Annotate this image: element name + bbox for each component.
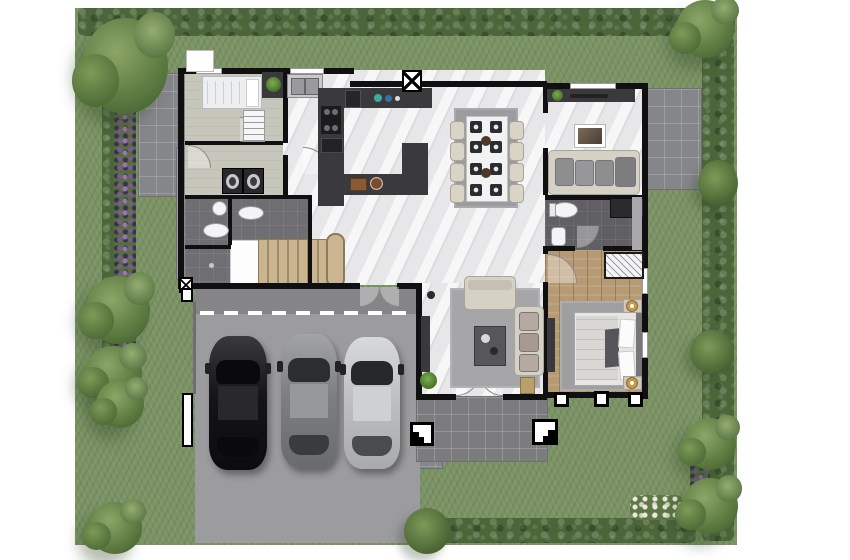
car-mirror-icon — [265, 363, 271, 374]
kettle-icon — [374, 94, 382, 102]
wall-maid-laundry — [185, 141, 283, 145]
porch-steps-right-icon — [532, 419, 558, 445]
toilet-1 — [203, 223, 229, 238]
dining-chair — [450, 142, 465, 161]
tree-left-1 — [86, 276, 150, 344]
gate-stub-west — [181, 288, 193, 302]
cooktop — [321, 106, 341, 134]
wall-garage-north-a — [178, 283, 360, 289]
dining-chair — [450, 121, 465, 140]
bush-right-3 — [684, 418, 736, 470]
shelf-unit — [243, 110, 265, 142]
sofa-cushion — [519, 333, 539, 352]
placemat — [490, 141, 502, 153]
placemat — [490, 163, 502, 175]
centerpiece — [481, 168, 491, 178]
porch-column — [628, 392, 643, 407]
lounge-sofa — [548, 150, 640, 195]
placemat — [470, 121, 482, 133]
washing-machine-2 — [243, 168, 264, 194]
appliance-icon — [385, 95, 392, 102]
double-bed — [574, 312, 640, 386]
car-windshield — [288, 358, 330, 382]
car-roof — [290, 384, 328, 418]
oven — [321, 138, 343, 153]
washing-machine-1 — [222, 168, 243, 194]
floor-lamp — [427, 291, 435, 299]
plant-living — [420, 372, 437, 389]
dining-chair — [509, 163, 524, 182]
sink-basin-1 — [291, 78, 305, 95]
ac-pad-top — [186, 50, 214, 72]
nightstand-lamp — [626, 377, 638, 389]
wall-top-center — [350, 81, 547, 87]
porch-column — [594, 391, 609, 407]
ensuite-basin — [551, 227, 566, 246]
headboard — [636, 310, 642, 386]
stair-landing — [230, 240, 260, 286]
coffee-table — [474, 326, 506, 366]
wall-west — [178, 68, 184, 288]
bedroom-tv-console — [547, 318, 555, 372]
bed-throw — [605, 328, 619, 367]
staircase — [258, 239, 330, 286]
bush-driveway-right — [404, 508, 450, 554]
refrigerator — [345, 90, 361, 108]
bush-bottom-right — [682, 478, 738, 534]
sofa-cushion — [519, 312, 539, 331]
bush-right-2 — [690, 330, 734, 374]
dining-chair — [450, 184, 465, 203]
wall-living-south-b — [503, 394, 547, 400]
car-mirror-icon — [398, 364, 404, 375]
stair-handrail — [326, 233, 345, 288]
garage-fence-line — [193, 302, 196, 394]
placemat — [470, 141, 482, 153]
toilet-tank — [549, 203, 556, 217]
car-roof — [353, 387, 391, 421]
porch-column — [554, 392, 569, 407]
car-windshield — [216, 360, 260, 384]
table-item-icon — [490, 347, 498, 355]
wall-living-south-a — [416, 394, 456, 400]
car-mirror-icon — [277, 361, 283, 372]
dining-chair — [450, 163, 465, 182]
dining-chair — [509, 142, 524, 161]
sink-basin-2 — [305, 78, 319, 95]
window-bedroom-east-2 — [642, 332, 648, 358]
tree-top-right — [676, 0, 734, 58]
dining-chair — [509, 121, 524, 140]
car-rear-window — [217, 437, 259, 457]
car-rear-window — [289, 435, 329, 455]
floor-plan-canvas — [0, 0, 850, 560]
vanity-basin — [238, 206, 264, 220]
basket — [520, 377, 535, 394]
car-black — [209, 336, 267, 470]
single-bed-pillow — [246, 79, 259, 107]
single-bed-fold — [207, 81, 247, 104]
living-tv-console — [421, 316, 430, 372]
clothes-rack — [604, 252, 644, 279]
car-rear-window — [352, 436, 392, 456]
placemat — [490, 184, 502, 196]
sofa-cushion — [575, 160, 594, 186]
car-gray — [281, 334, 337, 468]
nightstand-lamp — [626, 300, 638, 312]
car-silver — [344, 337, 400, 469]
wall-art — [574, 124, 606, 148]
sofa-cushion — [615, 157, 636, 187]
patio-right — [646, 88, 702, 190]
side-sofa — [514, 306, 544, 376]
garage-threshold-line — [200, 311, 416, 315]
sofa-cushion — [595, 160, 614, 186]
tree-bottom-left — [88, 502, 142, 554]
ensuite-counter — [632, 197, 642, 250]
ac-unit-x-box-top — [402, 70, 422, 92]
plant-lounge — [552, 90, 563, 101]
wall-bedroom-west-stub — [543, 246, 548, 254]
bush-right-1 — [698, 160, 738, 206]
wall-bath-inner-v — [228, 197, 232, 245]
loveseat — [464, 276, 516, 310]
porch-steps-left-icon — [410, 422, 434, 446]
placemat — [470, 184, 482, 196]
car-mirror-icon — [340, 364, 346, 375]
car-windshield — [351, 361, 393, 385]
dining-chair — [509, 184, 524, 203]
food-tray — [350, 178, 367, 191]
bed-pillow — [618, 318, 636, 348]
tree-left-3 — [96, 380, 144, 428]
single-bed — [202, 76, 262, 109]
sofa-cushion — [519, 354, 539, 372]
wall-bath-inner-h — [185, 245, 231, 249]
wall-bath-north — [185, 195, 312, 199]
floor-drain-icon — [209, 263, 214, 268]
wall-bath-east — [308, 195, 312, 285]
entry-porch-floor — [416, 396, 548, 462]
wall-ensuite-south-a — [545, 246, 575, 251]
table-item-icon — [481, 334, 490, 343]
centerpiece — [481, 136, 491, 146]
car-mirror-icon — [205, 363, 211, 374]
console-decor — [570, 94, 608, 98]
car-roof — [218, 386, 258, 420]
island-counter-v — [402, 143, 428, 195]
placemat — [490, 121, 502, 133]
plant-single-bedroom — [266, 77, 281, 92]
hedge-top — [78, 8, 735, 36]
wall-maid-kitchen-b — [283, 155, 288, 197]
gate-post-west — [182, 393, 193, 447]
hedge-bottom — [438, 518, 696, 543]
sofa-cushion — [555, 158, 574, 186]
food-plate — [370, 177, 383, 190]
round-basin — [212, 201, 227, 216]
tree-top-left — [82, 18, 168, 114]
jar-icon — [395, 96, 400, 101]
